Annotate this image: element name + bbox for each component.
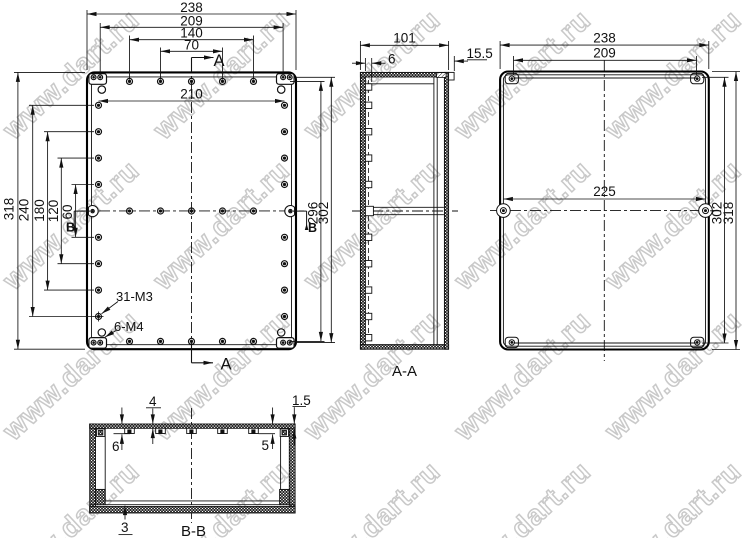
svg-text:209: 209	[593, 46, 616, 61]
svg-text:6-M4: 6-M4	[114, 319, 144, 334]
svg-text:6: 6	[388, 52, 396, 67]
svg-text:4: 4	[149, 394, 157, 409]
svg-text:60: 60	[60, 204, 75, 219]
svg-text:1.5: 1.5	[292, 393, 311, 408]
svg-text:A: A	[214, 52, 225, 70]
svg-text:6: 6	[112, 439, 120, 454]
svg-text:B-B: B-B	[181, 523, 206, 538]
svg-text:180: 180	[32, 199, 47, 222]
svg-text:5: 5	[262, 438, 270, 453]
svg-text:3: 3	[121, 520, 129, 535]
svg-text:15.5: 15.5	[467, 46, 493, 61]
svg-text:31-M3: 31-M3	[116, 289, 153, 304]
svg-text:A: A	[221, 356, 232, 374]
svg-text:A-A: A-A	[392, 363, 417, 380]
svg-text:302: 302	[316, 202, 331, 225]
svg-text:225: 225	[593, 184, 616, 199]
svg-text:318: 318	[721, 202, 736, 225]
svg-text:120: 120	[46, 200, 61, 223]
svg-text:240: 240	[16, 199, 31, 222]
svg-text:318: 318	[2, 198, 17, 221]
svg-text:70: 70	[184, 37, 199, 52]
svg-text:210: 210	[180, 87, 203, 102]
svg-text:B: B	[66, 221, 75, 235]
svg-text:238: 238	[593, 31, 616, 46]
svg-text:101: 101	[393, 31, 416, 46]
